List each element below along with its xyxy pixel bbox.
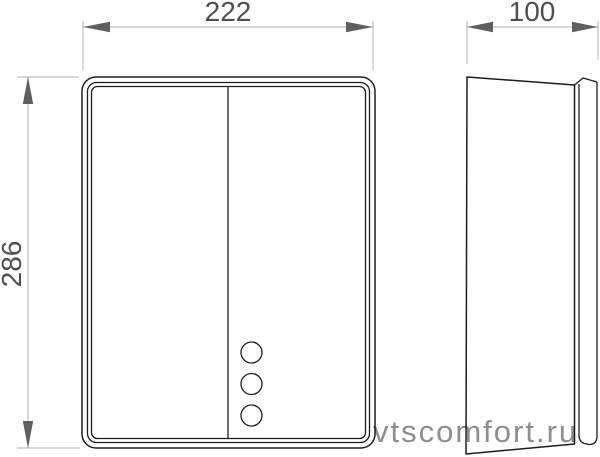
side-front-panel (466, 77, 575, 454)
watermark: vtscomfort.ru (373, 414, 578, 449)
depth-arrow-right-icon (572, 22, 598, 32)
height-dimension-label: 286 (0, 241, 27, 288)
width-dimension: 222 (83, 0, 373, 70)
vent-hole-top (241, 342, 262, 363)
height-arrow-top-icon (23, 77, 33, 104)
width-arrow-left-icon (83, 22, 110, 32)
depth-dimension: 100 (467, 0, 598, 64)
vent-hole-middle (241, 374, 262, 395)
depth-dimension-label: 100 (509, 0, 556, 27)
side-back-plate-top (575, 78, 598, 85)
height-dimension: 286 (0, 77, 80, 448)
height-arrow-bottom-icon (23, 421, 33, 448)
front-view (82, 77, 375, 448)
side-panel-inner-edge (579, 84, 588, 444)
width-dimension-label: 222 (205, 0, 252, 27)
width-arrow-right-icon (346, 22, 373, 32)
side-view (466, 77, 597, 454)
depth-arrow-left-icon (467, 22, 493, 32)
side-back-plate-outer (588, 82, 598, 445)
vent-hole-bottom (241, 405, 262, 426)
technical-drawing: vtscomfort.ru 222 (0, 0, 600, 457)
